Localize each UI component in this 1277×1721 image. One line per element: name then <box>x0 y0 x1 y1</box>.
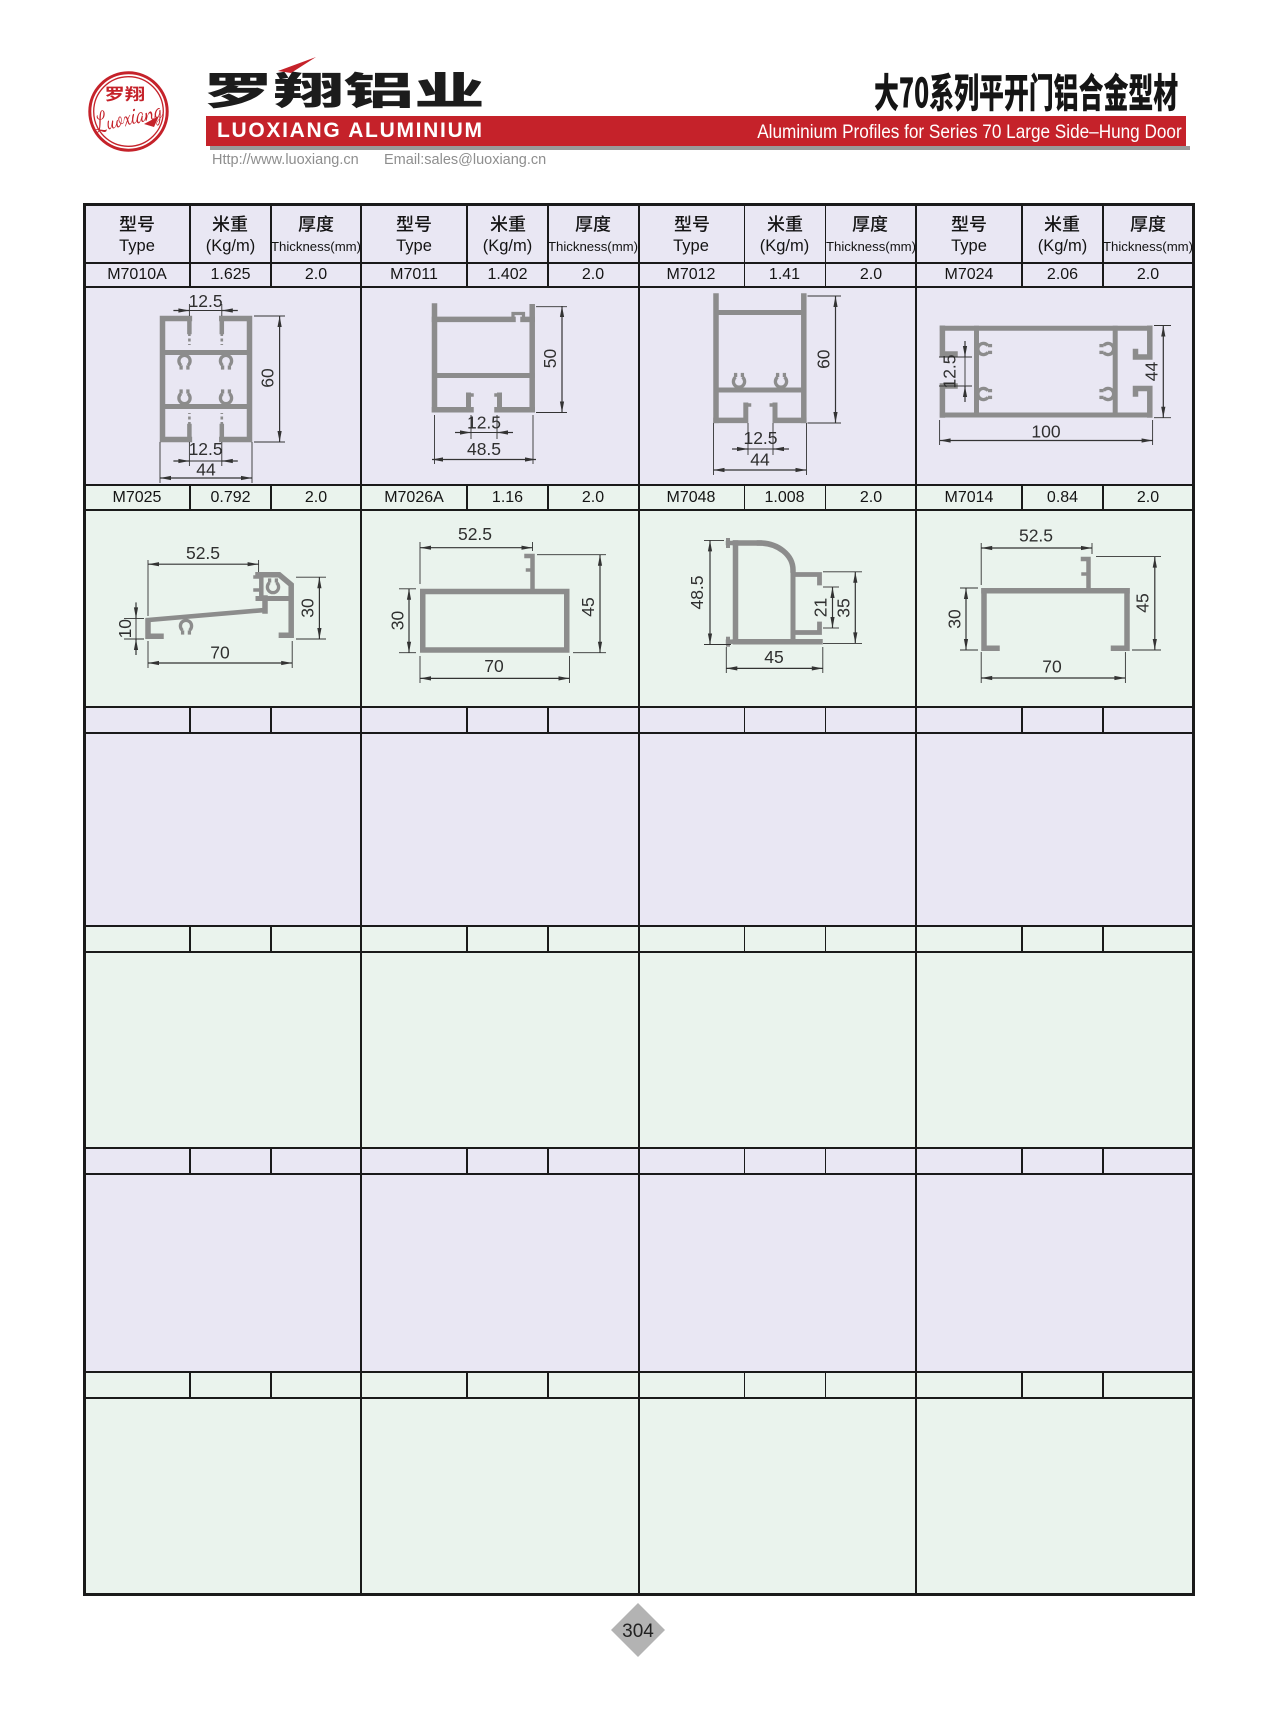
svg-text:10: 10 <box>115 619 135 639</box>
svg-text:45: 45 <box>764 647 783 667</box>
svg-text:70: 70 <box>1042 657 1062 677</box>
svg-text:50: 50 <box>540 349 560 369</box>
svg-text:44: 44 <box>1142 362 1162 382</box>
svg-text:30: 30 <box>298 598 318 618</box>
svg-text:12.5: 12.5 <box>189 291 223 311</box>
svg-text:44: 44 <box>196 460 216 480</box>
svg-text:70: 70 <box>484 656 504 676</box>
svg-text:30: 30 <box>388 611 408 631</box>
svg-text:12.5: 12.5 <box>467 413 501 433</box>
svg-text:12.5: 12.5 <box>743 428 777 448</box>
svg-text:52.5: 52.5 <box>1019 526 1053 546</box>
svg-text:44: 44 <box>750 450 770 470</box>
svg-text:48.5: 48.5 <box>467 439 501 459</box>
svg-text:21: 21 <box>811 598 831 617</box>
svg-text:35: 35 <box>834 598 854 617</box>
svg-text:12.5: 12.5 <box>189 439 223 459</box>
svg-text:45: 45 <box>1133 593 1153 612</box>
svg-text:52.5: 52.5 <box>186 543 220 563</box>
svg-text:48.5: 48.5 <box>687 575 707 609</box>
svg-text:60: 60 <box>814 349 834 369</box>
svg-text:30: 30 <box>945 609 965 629</box>
svg-text:52.5: 52.5 <box>458 524 492 544</box>
svg-text:60: 60 <box>258 368 278 388</box>
svg-text:100: 100 <box>1031 422 1060 442</box>
svg-text:70: 70 <box>210 643 230 663</box>
svg-text:45: 45 <box>578 597 598 616</box>
svg-text:304: 304 <box>622 1621 654 1642</box>
svg-text:12.5: 12.5 <box>940 354 960 388</box>
